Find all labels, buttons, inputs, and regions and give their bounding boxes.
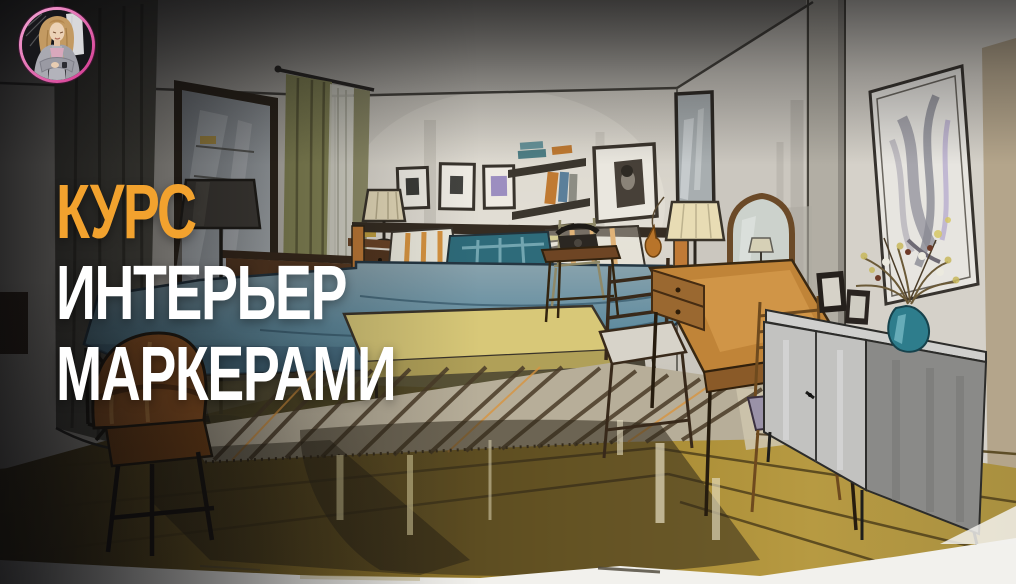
avatar-image [22,10,92,80]
channel-avatar [19,7,95,83]
corner-mirror [676,92,714,218]
avatar-watch [62,62,67,68]
title-line-2: ИНТЕРЬЕР [56,253,395,334]
curtain-rod-finial [275,66,282,73]
title-block: КУРС ИНТЕРЬЕР МАРКЕРАМИ [56,172,527,415]
title-line-3: МАРКЕРАМИ [56,334,395,415]
video-thumbnail[interactable]: КУРС ИНТЕРЬЕР МАРКЕРАМИ [0,0,1016,584]
avatar-woman-illustration [22,10,92,80]
portrait-frame [594,144,657,222]
title-line-1: КУРС [56,172,395,253]
avatar-camisole [50,48,64,58]
